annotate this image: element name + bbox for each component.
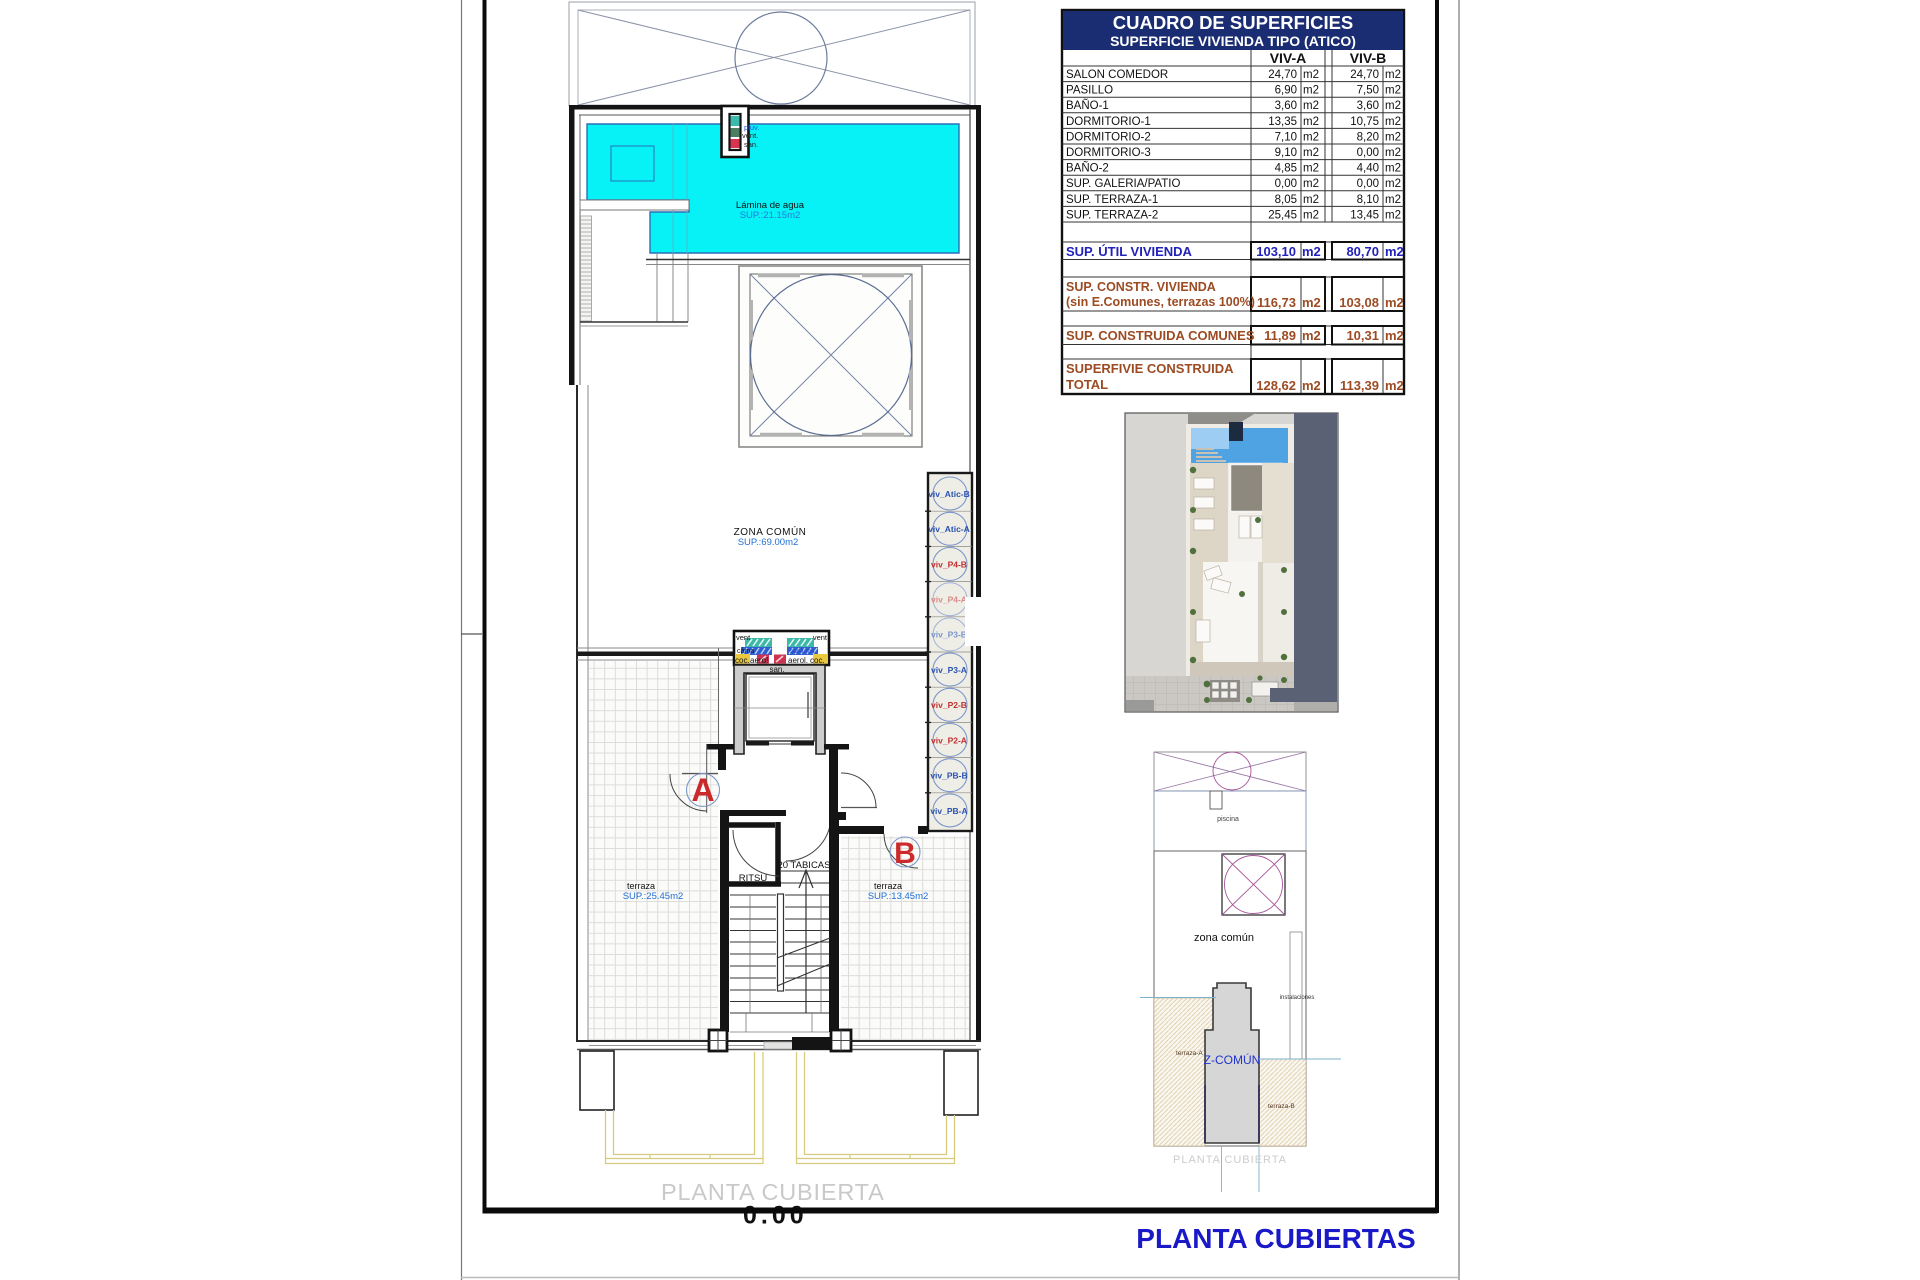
svg-text:PASILLO: PASILLO [1066,85,1113,97]
svg-text:SUPERFIVIE CONSTRUIDA: SUPERFIVIE CONSTRUIDA [1066,361,1234,376]
svg-text:vent: vent [813,633,828,642]
svg-text:viv_P2-A: viv_P2-A [931,736,967,746]
svg-text:113,39: 113,39 [1340,378,1379,393]
svg-text:103,10: 103,10 [1256,244,1296,259]
svg-text:3,60: 3,60 [1357,100,1379,112]
svg-text:SUP.:25.45m2: SUP.:25.45m2 [623,891,684,902]
svg-text:m2: m2 [1385,116,1401,128]
svg-text:7,50: 7,50 [1357,85,1379,97]
svg-text:SUPERFICIE VIVIENDA TIPO (ATI: SUPERFICIE VIVIENDA TIPO (ATICO) [1110,33,1356,49]
svg-text:20 TABICAS: 20 TABICAS [778,860,831,871]
svg-text:(sin E.Comunes, terrazas 100%): (sin E.Comunes, terrazas 100%) [1066,295,1255,309]
svg-text:m2: m2 [1303,116,1319,128]
svg-text:13,35: 13,35 [1268,116,1297,128]
svg-text:128,62: 128,62 [1256,378,1296,393]
svg-text:SUP.:69.00m2: SUP.:69.00m2 [738,537,799,548]
svg-text:zona común: zona común [1194,932,1254,944]
svg-text:terraza-A: terraza-A [1176,1050,1203,1057]
svg-text:RITSU: RITSU [739,873,768,884]
svg-text:A: A [691,772,714,808]
svg-text:DORMITORIO-1: DORMITORIO-1 [1066,116,1151,128]
svg-text:8,05: 8,05 [1275,194,1297,206]
svg-text:116,73: 116,73 [1257,295,1296,310]
svg-text:SUP.:13.45m2: SUP.:13.45m2 [868,891,929,902]
svg-text:piscina: piscina [1217,816,1239,823]
svg-text:m2: m2 [1385,244,1404,259]
svg-text:0.00: 0.00 [743,1202,808,1230]
svg-text:m2: m2 [1385,100,1401,112]
svg-text:PLANTA CUBIERTAS: PLANTA CUBIERTAS [1136,1223,1415,1254]
svg-text:viv_P4-A: viv_P4-A [931,595,967,605]
svg-text:viv_PB-B: viv_PB-B [930,771,967,781]
svg-text:m2: m2 [1303,85,1319,97]
svg-text:SUP. CONSTR. VIVIENDA: SUP. CONSTR. VIVIENDA [1066,280,1216,294]
svg-text:vent.: vent. [742,131,758,140]
svg-text:8,20: 8,20 [1357,131,1379,143]
svg-text:24,70: 24,70 [1268,69,1297,81]
svg-text:m2: m2 [1303,163,1319,175]
svg-text:m2: m2 [1302,244,1321,259]
svg-text:BAÑO-1: BAÑO-1 [1066,99,1109,112]
svg-text:instalaciones: instalaciones [1280,995,1315,1001]
svg-text:25,45: 25,45 [1268,209,1297,221]
svg-text:13,45: 13,45 [1350,209,1379,221]
svg-text:8,10: 8,10 [1357,194,1379,206]
svg-text:coc.: coc. [810,656,825,665]
svg-text:3,60: 3,60 [1275,100,1297,112]
svg-text:6,90: 6,90 [1275,85,1297,97]
svg-text:0,00: 0,00 [1357,178,1379,190]
svg-text:TOTAL: TOTAL [1066,377,1108,392]
svg-text:DORMITORIO-2: DORMITORIO-2 [1066,131,1151,143]
svg-text:DORMITORIO-3: DORMITORIO-3 [1066,147,1151,159]
svg-text:PLANTA CUBIERTA: PLANTA CUBIERTA [1173,1154,1287,1166]
svg-text:san.: san. [744,140,758,149]
svg-text:viv_P3-A: viv_P3-A [931,665,967,675]
svg-text:m2: m2 [1385,85,1401,97]
svg-text:aero!: aero! [750,656,768,665]
svg-text:SUP. GALERIA/PATIO: SUP. GALERIA/PATIO [1066,178,1180,190]
svg-text:m2: m2 [1385,178,1401,190]
svg-text:10,75: 10,75 [1350,116,1379,128]
svg-text:m2: m2 [1303,194,1319,206]
svg-text:SUP. ÚTIL VIVIENDA: SUP. ÚTIL VIVIENDA [1066,244,1193,259]
svg-text:viv_P2-B: viv_P2-B [931,700,967,710]
svg-text:0,00: 0,00 [1357,147,1379,159]
svg-text:m2: m2 [1303,100,1319,112]
svg-text:m2: m2 [1302,295,1321,310]
svg-text:viv_PB-A: viv_PB-A [930,806,967,816]
svg-text:m2: m2 [1385,295,1404,310]
svg-text:80,70: 80,70 [1346,244,1379,259]
svg-text:m2: m2 [1303,131,1319,143]
svg-text:sanit.ma: sanit.ma [790,648,815,655]
svg-text:terraza: terraza [627,881,655,891]
svg-text:SUP. TERRAZA-2: SUP. TERRAZA-2 [1066,209,1158,221]
svg-text:10,31: 10,31 [1346,328,1379,343]
svg-text:m2: m2 [1385,131,1401,143]
svg-text:CUADRO DE SUPERFICIES: CUADRO DE SUPERFICIES [1113,12,1354,33]
svg-text:viv_P4-B: viv_P4-B [931,560,967,570]
svg-text:24,70: 24,70 [1350,69,1379,81]
svg-text:SUP. CONSTRUIDA COMUNES: SUP. CONSTRUIDA COMUNES [1066,328,1255,343]
svg-text:m2: m2 [1303,69,1319,81]
svg-text:san.: san. [769,665,784,674]
svg-text:B: B [894,837,916,870]
svg-text:SALON COMEDOR: SALON COMEDOR [1066,69,1168,81]
svg-text:9,10: 9,10 [1275,147,1297,159]
svg-text:VIV-A: VIV-A [1270,50,1307,66]
svg-text:SUP. TERRAZA-1: SUP. TERRAZA-1 [1066,194,1158,206]
svg-text:viv_Atic-B: viv_Atic-B [928,489,970,499]
svg-text:m2: m2 [1302,378,1321,393]
svg-text:VIV-B: VIV-B [1350,50,1387,66]
svg-text:103,08: 103,08 [1339,295,1379,310]
svg-text:m2: m2 [1385,378,1404,393]
svg-text:4,40: 4,40 [1357,163,1379,175]
svg-text:terraza-B: terraza-B [1268,1103,1295,1110]
svg-text:m2: m2 [1303,178,1319,190]
svg-text:cáma: cáma [737,648,754,655]
svg-text:m2: m2 [1385,147,1401,159]
svg-text:Z-COMÚN: Z-COMÚN [1204,1052,1261,1067]
svg-text:viv_P3-B: viv_P3-B [931,630,967,640]
svg-text:11,89: 11,89 [1264,328,1296,343]
svg-text:m2: m2 [1385,209,1401,221]
svg-text:0,00: 0,00 [1275,178,1297,190]
svg-text:7,10: 7,10 [1275,131,1297,143]
svg-text:m2: m2 [1385,69,1401,81]
svg-text:viv_Atic-A: viv_Atic-A [928,524,970,534]
svg-text:m2: m2 [1303,147,1319,159]
svg-text:m2: m2 [1302,328,1321,343]
svg-text:vent: vent [736,633,751,642]
svg-text:m2: m2 [1385,194,1401,206]
svg-text:4,85: 4,85 [1275,163,1297,175]
svg-text:aerol.: aerol. [788,656,808,665]
svg-text:m2: m2 [1303,209,1319,221]
svg-text:m2: m2 [1385,328,1404,343]
svg-text:terraza: terraza [874,881,902,891]
svg-text:BAÑO-2: BAÑO-2 [1066,162,1109,175]
svg-text:coc.: coc. [735,656,750,665]
svg-text:SUP.:21.15m2: SUP.:21.15m2 [740,210,801,221]
svg-text:m2: m2 [1385,163,1401,175]
